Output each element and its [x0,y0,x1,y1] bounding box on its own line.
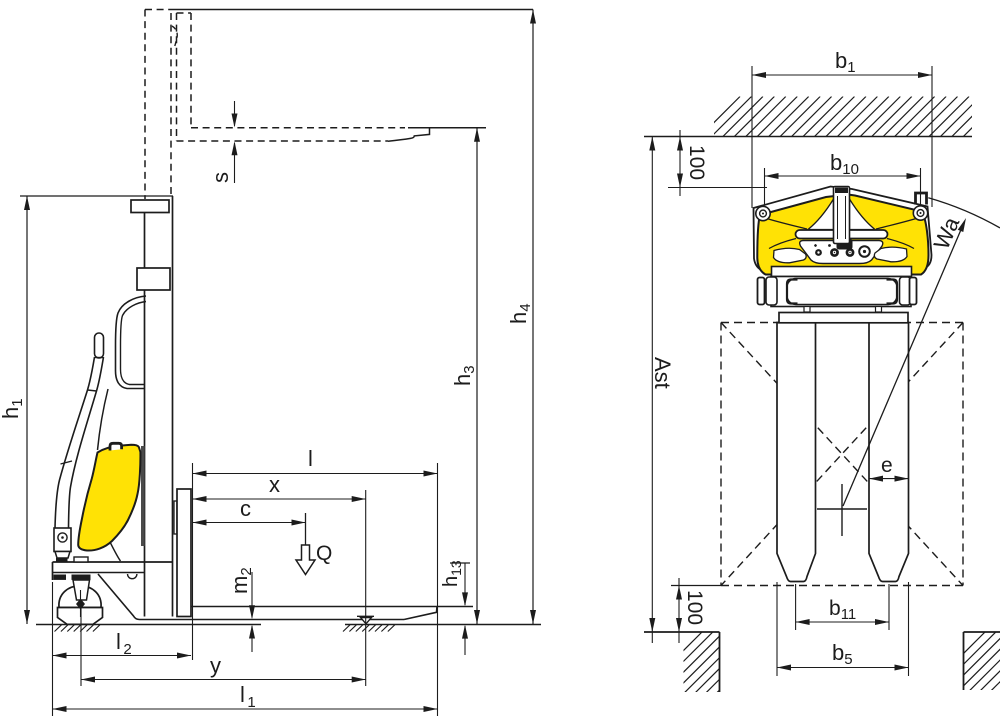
svg-text:s: s [208,172,233,183]
svg-text:c: c [240,496,251,521]
svg-text:100: 100 [683,590,706,625]
svg-text:Q: Q [316,542,332,565]
svg-text:l: l [308,446,313,471]
svg-text:Ast: Ast [650,357,675,389]
svg-text:e: e [881,454,893,477]
svg-text:x: x [269,472,280,497]
svg-text:100: 100 [685,145,708,180]
svg-text:y: y [210,653,221,678]
